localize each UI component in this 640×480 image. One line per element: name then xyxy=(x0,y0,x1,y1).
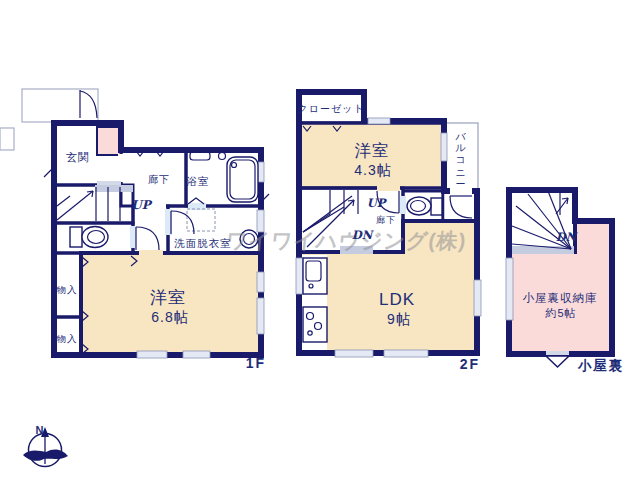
hall-nook-1f xyxy=(133,206,168,253)
label-room2-size: 4.3帖 xyxy=(354,163,391,177)
kitchen-sink-icon xyxy=(303,258,327,294)
label-dn-2f: DN xyxy=(352,230,372,242)
label-room2-name: 洋室 xyxy=(355,142,390,159)
genkan-step xyxy=(97,181,121,185)
window xyxy=(368,118,390,124)
window xyxy=(506,258,513,320)
window xyxy=(257,272,264,292)
window xyxy=(137,351,167,358)
stair-landing-1f xyxy=(95,185,133,192)
label-attic-size: 約5帖 xyxy=(545,308,576,319)
window xyxy=(474,280,481,316)
label-balcony: バルコニー xyxy=(455,124,465,179)
stove-icon xyxy=(303,307,327,342)
label-hallway-2f: 廊下 xyxy=(376,216,396,225)
toilet-icon-2f xyxy=(407,197,442,215)
genkan-cabinet xyxy=(97,127,121,155)
label-room1-name: 洋室 xyxy=(150,289,186,306)
floor-plan-attic xyxy=(506,190,612,367)
label-dn-attic: DN xyxy=(556,232,576,244)
label-room1-size: 6.8帖 xyxy=(151,310,188,324)
window xyxy=(183,351,210,358)
label-up-1f: UP xyxy=(131,199,151,211)
floorplan-canvas: ワイワイハウジング(株) 玄関 廊下 UP 浴室 洗面脱衣室 洋室 6.8帖 物… xyxy=(0,0,640,480)
label-hallway-1f: 廊下 xyxy=(148,175,170,185)
company-watermark: ワイワイハウジング(株) xyxy=(225,227,468,255)
label-genkan: 玄関 xyxy=(66,152,90,163)
label-washroom: 洗面脱衣室 xyxy=(174,238,232,249)
label-floor-2f: 2F xyxy=(460,357,480,371)
porch xyxy=(0,89,98,150)
label-floor-1f: 1F xyxy=(246,356,266,370)
label-ldk-size: 9帖 xyxy=(387,312,411,326)
label-compass-north: N xyxy=(36,425,45,436)
label-closet: クローゼット xyxy=(297,104,364,114)
label-attic-storage: 小屋裏収納庫 xyxy=(523,293,598,305)
window xyxy=(335,350,373,357)
bath-vanity-icon xyxy=(190,152,226,160)
floor-plan-1f xyxy=(0,89,269,358)
label-ldk-name: LDK xyxy=(379,291,415,308)
window xyxy=(296,258,303,294)
label-storage1: 物入 xyxy=(57,285,78,295)
attic-vent-mark xyxy=(546,351,569,367)
window xyxy=(257,298,264,334)
compass-icon xyxy=(23,427,68,467)
label-up-2f: UP xyxy=(367,198,386,210)
label-floor-attic: 小屋裏 xyxy=(578,359,625,373)
window xyxy=(384,350,428,357)
label-bath: 浴室 xyxy=(187,176,210,187)
stairs-1f xyxy=(57,187,120,221)
window xyxy=(441,133,447,161)
label-storage2: 物入 xyxy=(57,334,78,344)
toilet-icon xyxy=(70,227,108,248)
bathtub-icon xyxy=(227,157,258,202)
